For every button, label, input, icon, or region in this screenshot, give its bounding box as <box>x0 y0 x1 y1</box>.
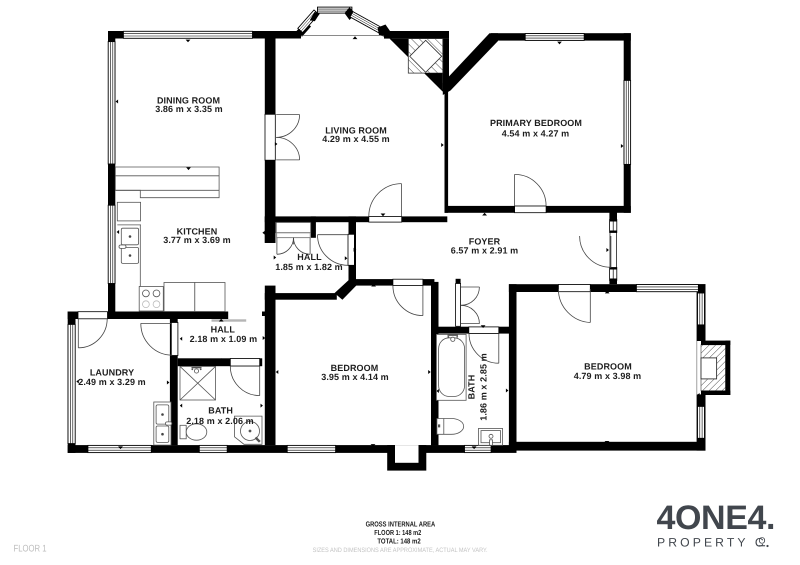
svg-text:3.95 m x 4.14 m: 3.95 m x 4.14 m <box>321 372 389 382</box>
svg-text:4ONE4.: 4ONE4. <box>657 499 776 537</box>
svg-text:O: O <box>759 536 766 546</box>
svg-text:4.79 m x 3.98 m: 4.79 m x 3.98 m <box>574 371 642 381</box>
svg-text:3.86 m x 3.35 m: 3.86 m x 3.35 m <box>155 104 223 114</box>
svg-text:BATH: BATH <box>467 375 477 400</box>
svg-text:6.57 m x 2.91 m: 6.57 m x 2.91 m <box>451 246 519 256</box>
svg-text:2.49 m x 3.29 m: 2.49 m x 3.29 m <box>78 377 146 387</box>
svg-text:SIZES AND DIMENSIONS ARE APPRO: SIZES AND DIMENSIONS ARE APPROXIMATE, AC… <box>313 547 488 554</box>
svg-text:LAUNDRY: LAUNDRY <box>90 367 134 377</box>
svg-text:2.18 m x 1.09 m: 2.18 m x 1.09 m <box>190 334 258 344</box>
svg-text:3.77 m x 3.69 m: 3.77 m x 3.69 m <box>163 235 231 245</box>
svg-text:FLOOR 1: FLOOR 1 <box>14 544 47 555</box>
svg-text:1.85 m x 1.82 m: 1.85 m x 1.82 m <box>275 262 343 272</box>
svg-text:4.29 m x 4.55 m: 4.29 m x 4.55 m <box>322 134 390 144</box>
svg-text:HALL: HALL <box>211 324 236 334</box>
svg-text:PROPERTY C: PROPERTY C <box>657 535 767 549</box>
svg-text:4.54 m x 4.27 m: 4.54 m x 4.27 m <box>502 128 570 138</box>
svg-text:HALL: HALL <box>297 252 322 262</box>
svg-text:1.86 m x 2.85 m: 1.86 m x 2.85 m <box>478 353 488 421</box>
svg-text:BEDROOM: BEDROOM <box>584 361 632 371</box>
svg-text:TOTAL: 148 m2: TOTAL: 148 m2 <box>377 536 420 545</box>
svg-text:2.18 m x 2.06 m: 2.18 m x 2.06 m <box>186 416 254 426</box>
svg-text:PRIMARY BEDROOM: PRIMARY BEDROOM <box>490 118 582 128</box>
svg-text:BATH: BATH <box>208 406 233 416</box>
